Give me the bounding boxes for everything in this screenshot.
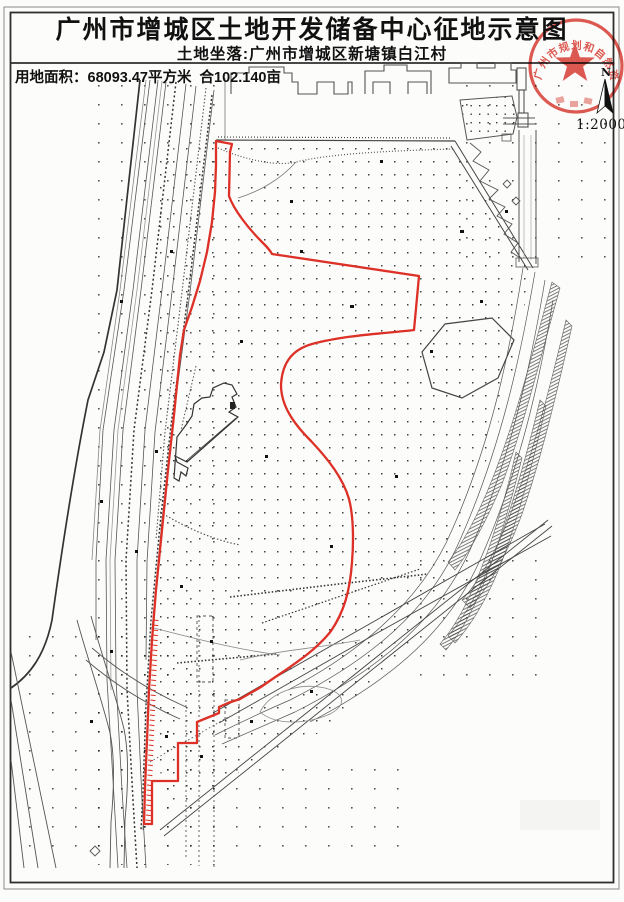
scale-label: 1:2000 xyxy=(576,117,624,133)
ground-texture xyxy=(15,85,607,865)
area-label: 用地面积：68093.47平方米 合102.140亩 xyxy=(15,66,281,87)
map-canvas: 广州市规划和自然资源局 N xyxy=(0,0,624,902)
scan-smudge xyxy=(520,800,600,830)
page-subtitle: 土地坐落:广州市增城区新塘镇白江村 xyxy=(0,42,624,64)
page-title: 广州市增城区土地开发储备中心征地示意图 xyxy=(0,10,624,46)
map-sheet: 广州市规划和自然资源局 N 广州市增城区土地开发储备中心征地示意图 土地坐落:广… xyxy=(0,0,624,902)
north-label: N xyxy=(601,66,611,79)
